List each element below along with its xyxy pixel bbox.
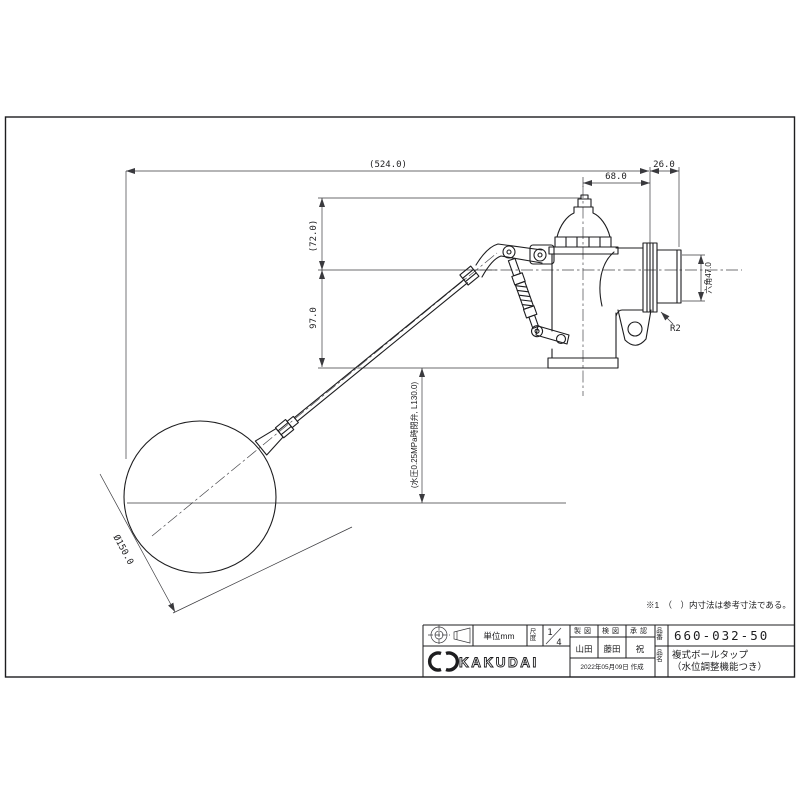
- outlet-hex-facets: [647, 243, 653, 312]
- body-top-flange: [549, 247, 618, 254]
- checked-label: 検図: [602, 626, 622, 635]
- mounting-ear-hole: [628, 322, 642, 336]
- drawing-page: (524.0) 26.0 68.0 (72.0) 97.0 (水圧0.25MPa…: [0, 0, 800, 800]
- projection-symbol-icon: [428, 625, 470, 645]
- dim-outlet-offset: 68.0: [605, 172, 627, 182]
- product-name-label: 品名: [655, 649, 663, 664]
- technical-drawing: (524.0) 26.0 68.0 (72.0) 97.0 (水圧0.25MPa…: [0, 0, 800, 800]
- lever-pivot-screw: [507, 250, 511, 254]
- dim-cap-height: (72.0): [309, 220, 319, 253]
- float-rod: [294, 279, 467, 421]
- dim-hex-width: 六角47.0: [703, 262, 713, 294]
- bracket-pivot: [534, 249, 546, 261]
- drafted-label: 製図: [574, 626, 594, 635]
- product-name-line2: （水位調整機能つき）: [672, 661, 767, 673]
- scale-numerator: 1: [547, 628, 552, 638]
- cap-screw: [578, 199, 591, 207]
- brand-name: KAKUDAI: [459, 655, 539, 670]
- drafted-by: 山田: [575, 644, 592, 654]
- dim-float-diameter: Ø150.0: [111, 533, 136, 567]
- mounting-ear: [618, 310, 651, 345]
- branch-fillet-curve: [600, 252, 614, 306]
- checked-by: 藤田: [603, 644, 620, 654]
- part-no-label: 品番: [655, 627, 663, 642]
- dimension-lines: [100, 167, 705, 613]
- dim-overall-length: (524.0): [369, 160, 407, 170]
- sheet-border: [6, 117, 795, 677]
- scale-label: 尺度: [528, 628, 536, 643]
- unit-label: 単位mm: [483, 631, 514, 641]
- approved-label: 承認: [630, 626, 650, 635]
- dome-cap: [557, 207, 610, 237]
- kakudai-logo-icon: [430, 653, 458, 670]
- cap-screw-top: [581, 195, 588, 199]
- dim-thread-spec: R2: [670, 324, 681, 334]
- approved-by: 祝: [636, 644, 645, 654]
- centerlines: [152, 186, 742, 536]
- lever-pivot: [503, 246, 515, 258]
- branch-bottom: [616, 310, 643, 316]
- reference-note: ※1 （ ）内寸法は参考寸法である。: [646, 600, 791, 610]
- scale-denominator: 4: [556, 638, 561, 648]
- dim-closing-level: (水圧0.25MPa時閉弁, L130.0): [409, 382, 419, 489]
- product-name-line1: 複式ボールタップ: [672, 649, 749, 661]
- dim-thread-length: 26.0: [653, 160, 675, 170]
- part-number: 660-032-50: [674, 628, 769, 643]
- title-block: 単位mm 尺度 1 4 KAKUDAI 製図 検図 承認 山田 藤田 祝 202…: [423, 625, 795, 677]
- creation-date: 2022年05月09日 作成: [580, 662, 644, 671]
- float-ball-assembly: [124, 266, 479, 573]
- dim-body-drop: 97.0: [309, 307, 319, 329]
- bracket-pivot-screw: [538, 253, 542, 257]
- dimension-labels: (524.0) 26.0 68.0 (72.0) 97.0 (水圧0.25MPa…: [111, 160, 791, 610]
